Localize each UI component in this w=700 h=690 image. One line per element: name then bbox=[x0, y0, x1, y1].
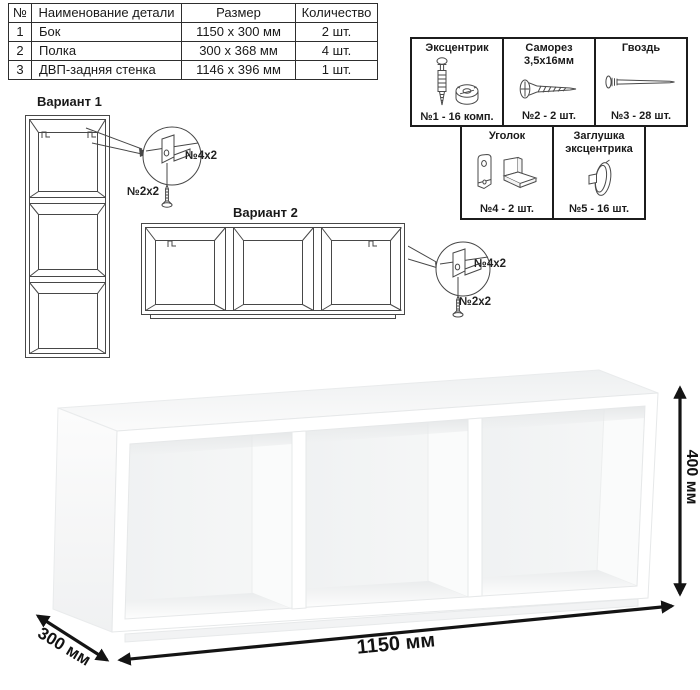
cell-name: Бок bbox=[32, 23, 182, 42]
cell-size: 1150 x 300 мм bbox=[182, 23, 296, 42]
hardware-count: №1 - 16 комп. bbox=[420, 111, 493, 123]
hardware-count: №4 - 2 шт. bbox=[480, 203, 534, 215]
cell-name: ДВП-задняя стенка bbox=[32, 61, 182, 80]
shelf-divider bbox=[468, 418, 482, 597]
hardware-count: №2 - 2 шт. bbox=[522, 110, 576, 122]
cell-name: Полка bbox=[32, 42, 182, 61]
cell-qty: 2 шт. bbox=[296, 23, 378, 42]
self-tapping-screw-icon bbox=[518, 68, 580, 110]
hardware-row-top: Эксцентрик bbox=[410, 37, 688, 127]
hardware-cell-bracket: Уголок bbox=[460, 125, 554, 220]
table-row: 1 Бок 1150 x 300 мм 2 шт. bbox=[9, 23, 378, 42]
hardware-cell-eccentric: Эксцентрик bbox=[410, 37, 504, 127]
hardware-cell-screw: Саморез 3,5х16мм №2 - 2 шт. bbox=[502, 37, 596, 127]
variant1-callout bbox=[80, 110, 230, 222]
shelf-divider bbox=[292, 431, 306, 609]
header-part-name: Наименование детали bbox=[32, 4, 182, 23]
cam-cover-cap-icon bbox=[582, 156, 616, 203]
hardware-name: Эксцентрик bbox=[419, 42, 495, 55]
hardware-name: Гвоздь bbox=[603, 42, 679, 55]
screw-detail-icon bbox=[162, 185, 172, 207]
cell-size: 300 x 368 мм bbox=[182, 42, 296, 61]
header-qty: Количество bbox=[296, 4, 378, 23]
label-screw-qty: №2х2 bbox=[459, 296, 491, 308]
angle-bracket-icon bbox=[474, 143, 540, 203]
hardware-name: Заглушка эксцентрика bbox=[561, 130, 637, 156]
hardware-count: №5 - 16 шт. bbox=[569, 203, 629, 215]
shelf-left-face bbox=[53, 408, 117, 632]
hardware-box: Эксцентрик bbox=[410, 37, 688, 220]
label-screw-qty: №2х2 bbox=[127, 186, 159, 198]
mini-bracket-icon bbox=[369, 241, 377, 247]
table-row: 2 Полка 300 x 368 мм 4 шт. bbox=[9, 42, 378, 61]
table-header-row: № Наименование детали Размер Количество bbox=[9, 4, 378, 23]
cell-num: 1 bbox=[9, 23, 32, 42]
cell-qty: 4 шт. bbox=[296, 42, 378, 61]
variant2-drawing bbox=[138, 218, 410, 324]
assembly-instruction-sheet: № Наименование детали Размер Количество … bbox=[0, 0, 700, 690]
hardware-row-bottom: Уголок bbox=[460, 125, 688, 220]
hardware-name: Уголок bbox=[469, 130, 545, 143]
hardware-count: №3 - 28 шт. bbox=[611, 110, 671, 122]
variant2-callout bbox=[408, 232, 508, 327]
cell-num: 2 bbox=[9, 42, 32, 61]
cell-qty: 1 шт. bbox=[296, 61, 378, 80]
label-bracket-qty: №4х2 bbox=[185, 150, 217, 162]
hardware-cell-nail: Гвоздь №3 - 28 шт. bbox=[594, 37, 688, 127]
header-size: Размер bbox=[182, 4, 296, 23]
dim-height-label: 400 мм bbox=[682, 427, 700, 527]
cell-num: 3 bbox=[9, 61, 32, 80]
hardware-cell-cap: Заглушка эксцентрика №5 - 16 шт. bbox=[552, 125, 646, 220]
nail-icon bbox=[604, 55, 678, 110]
table-row: 3 ДВП-задняя стенка 1146 x 396 мм 1 шт. bbox=[9, 61, 378, 80]
mini-bracket-icon bbox=[168, 241, 176, 247]
shelf-body bbox=[53, 368, 660, 642]
header-num: № bbox=[9, 4, 32, 23]
cam-lock-fitting-icon bbox=[429, 55, 485, 111]
parts-table: № Наименование детали Размер Количество … bbox=[8, 3, 378, 80]
cell-size: 1146 x 396 мм bbox=[182, 61, 296, 80]
hardware-name: Саморез 3,5х16мм bbox=[511, 42, 587, 68]
variant1-title: Вариант 1 bbox=[37, 94, 102, 109]
label-bracket-qty: №4х2 bbox=[474, 258, 506, 270]
